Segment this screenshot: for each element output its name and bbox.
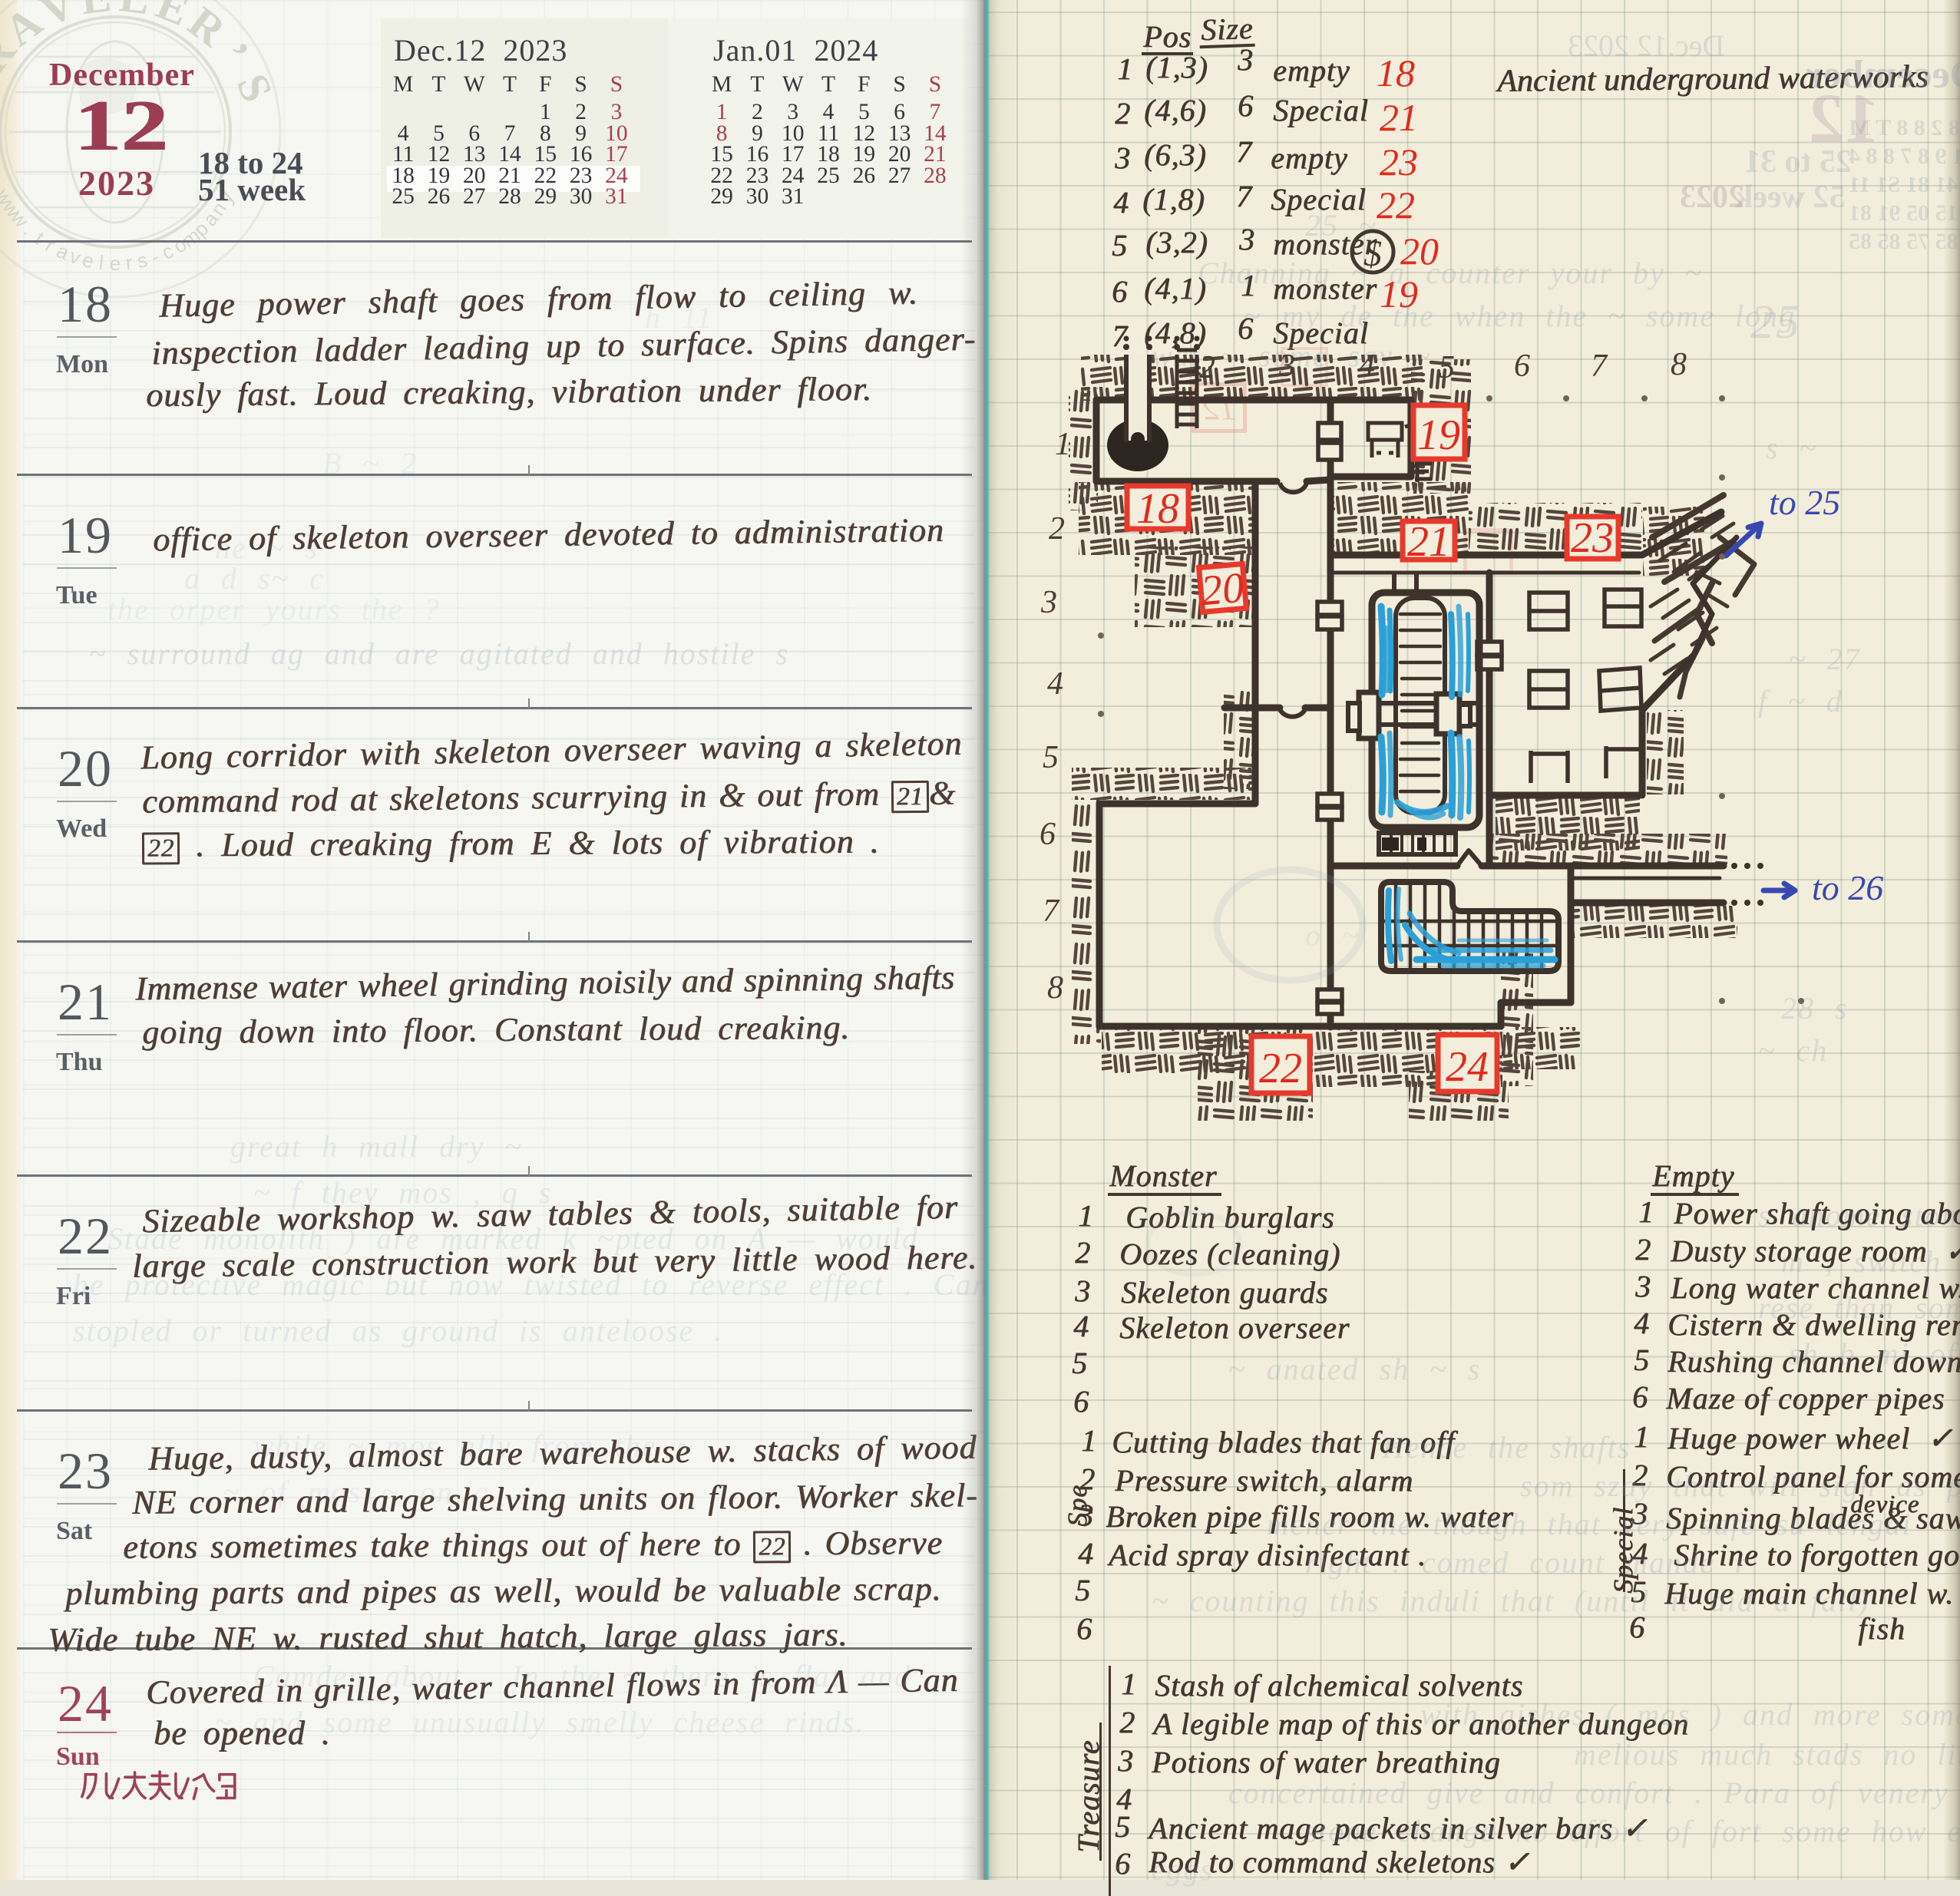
svg-text:to 26: to 26	[1812, 868, 1883, 907]
svg-text:5: 5	[1043, 740, 1059, 775]
svg-text:21: 21	[1407, 518, 1450, 566]
svg-text:$: $	[1363, 233, 1382, 274]
svg-text:22: 22	[1259, 1045, 1302, 1092]
svg-text:4: 4	[1047, 666, 1063, 702]
svg-text:5: 5	[1439, 350, 1455, 385]
svg-text:2: 2	[1049, 511, 1065, 547]
svg-text:20: 20	[1400, 230, 1439, 273]
svg-text:8: 8	[1047, 970, 1063, 1006]
svg-text:to 25: to 25	[1769, 483, 1840, 522]
svg-text:23: 23	[1380, 140, 1418, 183]
svg-text:6: 6	[1514, 348, 1530, 384]
svg-text:1: 1	[1055, 427, 1071, 462]
svg-text:8: 8	[1671, 347, 1687, 382]
svg-text:24: 24	[1446, 1043, 1489, 1091]
svg-text:22: 22	[1377, 183, 1415, 226]
svg-text:21: 21	[1380, 96, 1418, 139]
svg-text:3: 3	[1278, 348, 1295, 384]
svg-text:23: 23	[1571, 514, 1614, 562]
svg-text:6: 6	[1039, 817, 1056, 852]
svg-text:19: 19	[1417, 411, 1460, 459]
svg-text:19: 19	[1380, 273, 1418, 315]
svg-text:18: 18	[1136, 485, 1179, 533]
svg-text:3: 3	[1040, 585, 1057, 620]
svg-text:7: 7	[1043, 893, 1060, 929]
svg-text:4: 4	[1359, 348, 1375, 384]
svg-text:2: 2	[1199, 350, 1215, 385]
svg-text:7: 7	[1591, 348, 1608, 384]
svg-text:20: 20	[1199, 564, 1246, 616]
svg-text:18: 18	[1377, 51, 1415, 94]
